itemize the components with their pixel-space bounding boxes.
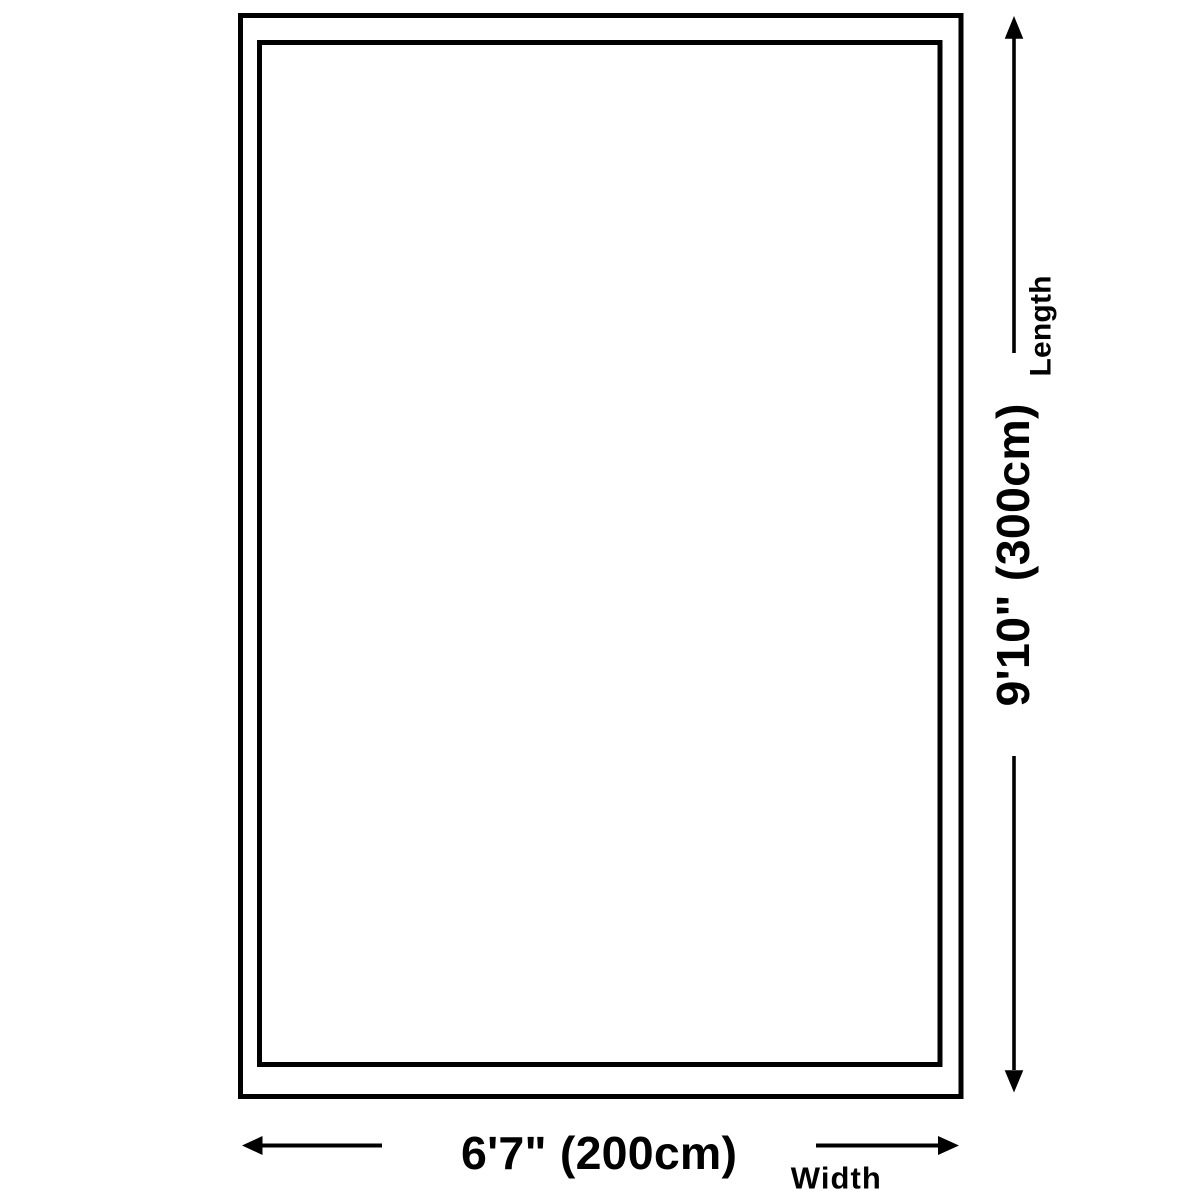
svg-text:Width: Width (791, 1161, 881, 1196)
svg-text:6'7" (200cm): 6'7" (200cm) (461, 1127, 737, 1179)
svg-text:9'10" (300cm): 9'10" (300cm) (987, 404, 1039, 707)
svg-text:Length: Length (1024, 276, 1057, 377)
